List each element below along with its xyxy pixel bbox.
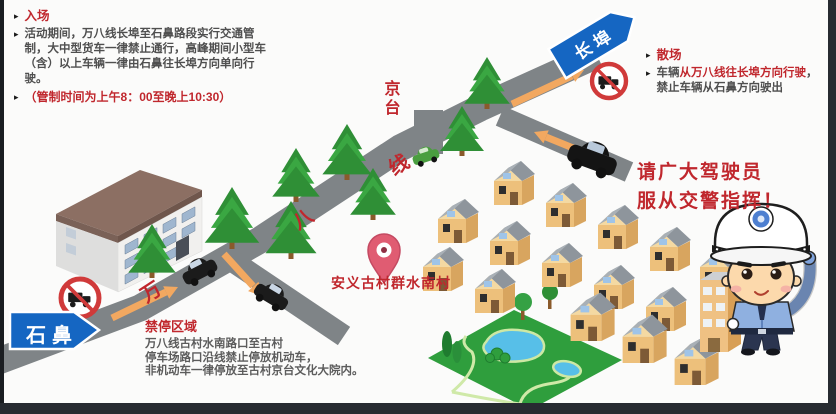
direction-sign-shibi-text: 石鼻 <box>15 319 89 348</box>
no-parking-notice: 禁停区域 万八线古村水南路口至古村停车场路口沿线禁止停放机动车，非机动车一律停放… <box>145 316 435 379</box>
bullet-icon: ▸ <box>646 66 651 81</box>
pine-tree-icon <box>205 187 260 249</box>
no-parking-line: 万八线古村水南路口至古村 <box>145 338 435 352</box>
exit-title: 散场 <box>657 48 682 63</box>
village-house <box>475 269 516 313</box>
bullet-icon: ▸ <box>14 9 19 24</box>
village-house <box>650 227 691 271</box>
pine-tree-icon <box>322 124 371 180</box>
village-house <box>598 205 639 249</box>
obey-line-2: 服从交警指挥！ <box>637 187 817 216</box>
exit-body-segment: 车辆 <box>657 67 680 79</box>
right-frame-edge <box>828 0 836 414</box>
village-label: 安义古村群水南村 <box>331 273 451 293</box>
no-parking-line: 非机动车一律停放至古村京台文化大院内。 <box>145 365 435 379</box>
obey-police-message: 请广大驾驶员 服从交警指挥！ <box>637 158 817 216</box>
no-parking-line: 停车场路口沿线禁止停放机动车， <box>145 352 435 366</box>
small-building-window <box>703 303 712 311</box>
left-frame-edge <box>0 0 4 414</box>
small-building-window <box>716 303 725 311</box>
village-house <box>494 161 535 205</box>
traffic-control-infographic: ▸ 入场 ▸ 活动期间，万八线长埠至石鼻路段实行交通管制，大中型货车一律禁止通行… <box>0 0 836 414</box>
small-building-window <box>703 319 712 327</box>
exit-notice: ▸ 散场 ▸ 车辆从万八线往长埠方向行驶，禁止车辆从石鼻方向驶出 <box>646 48 818 99</box>
obey-line-1: 请广大驾驶员 <box>637 158 817 187</box>
bullet-icon: ▸ <box>646 48 651 63</box>
small-building-door <box>708 338 720 352</box>
bottom-frame-edge <box>0 403 836 414</box>
village-house <box>542 243 583 287</box>
exit-body: 车辆从万八线往长埠方向行驶，禁止车辆从石鼻方向驶出 <box>657 66 818 96</box>
cypress-bush <box>453 341 462 363</box>
village-house <box>546 183 587 227</box>
no-trucks-sign-icon <box>592 64 626 98</box>
cypress-bush <box>442 331 452 357</box>
pine-tree-icon <box>272 148 320 202</box>
village-house <box>490 221 531 265</box>
village-house <box>438 199 479 243</box>
bullet-icon: ▸ <box>14 27 19 42</box>
small-building-window <box>716 319 725 327</box>
bullet-icon: ▸ <box>14 90 19 105</box>
entry-time-note: （管制时间为上午8：00至晚上10:30） <box>25 90 232 105</box>
exit-body-segment: 从万八线往长埠方向行驶 <box>680 67 807 79</box>
small-building-window <box>703 287 712 295</box>
no-parking-title: 禁停区域 <box>145 316 435 335</box>
entry-body: 活动期间，万八线长埠至石鼻路段实行交通管制，大中型货车一律禁止通行，高峰期间小型… <box>25 27 270 87</box>
road-label-jingtai: 京台 <box>384 80 401 118</box>
small-building-window <box>716 287 725 295</box>
entry-title: 入场 <box>25 9 50 24</box>
no-parking-lines: 万八线古村水南路口至古村停车场路口沿线禁止停放机动车，非机动车一律停放至古村京台… <box>145 338 435 379</box>
entry-notice: ▸ 入场 ▸ 活动期间，万八线长埠至石鼻路段实行交通管制，大中型货车一律禁止通行… <box>14 9 270 108</box>
